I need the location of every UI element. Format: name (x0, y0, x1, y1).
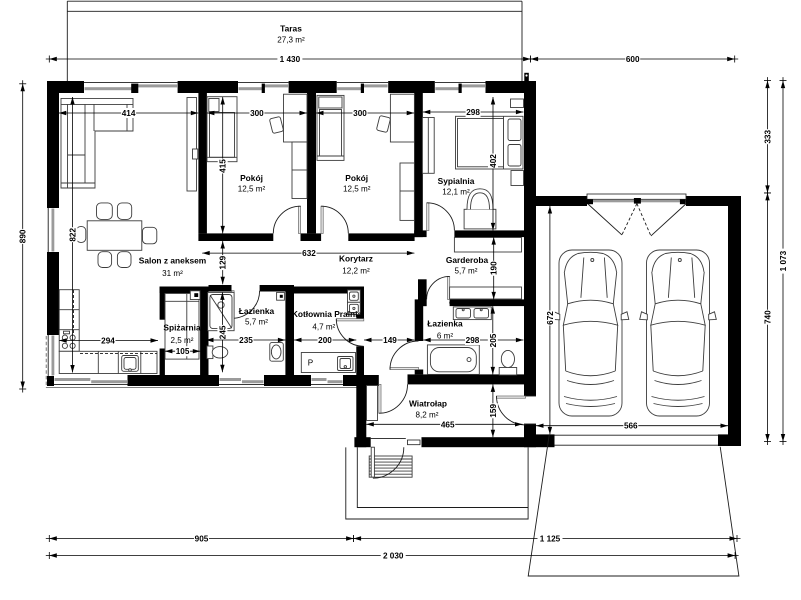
svg-text:Spiżarnia: Spiżarnia (163, 323, 201, 333)
svg-text:12,1 m²: 12,1 m² (442, 188, 470, 197)
svg-text:300: 300 (353, 109, 367, 118)
svg-text:1 430: 1 430 (280, 55, 301, 64)
svg-text:27,3 m²: 27,3 m² (277, 36, 305, 45)
svg-text:190: 190 (490, 261, 499, 275)
svg-text:129: 129 (219, 255, 228, 269)
svg-text:402: 402 (489, 154, 498, 168)
svg-text:465: 465 (441, 420, 455, 429)
svg-text:31 m²: 31 m² (162, 269, 183, 278)
svg-text:12,5 m²: 12,5 m² (343, 185, 371, 194)
svg-text:415: 415 (219, 159, 228, 173)
svg-text:294: 294 (101, 337, 115, 346)
svg-text:632: 632 (302, 249, 316, 258)
svg-text:1 125: 1 125 (540, 535, 561, 544)
svg-text:Pokój: Pokój (240, 173, 263, 183)
svg-text:200: 200 (318, 336, 332, 345)
svg-text:300: 300 (250, 109, 264, 118)
svg-text:Taras: Taras (280, 24, 302, 34)
svg-text:235: 235 (239, 336, 253, 345)
svg-text:Sypialnia: Sypialnia (438, 176, 475, 186)
svg-text:333: 333 (764, 130, 773, 144)
svg-text:5,7 m²: 5,7 m² (455, 267, 478, 276)
svg-text:Wiatrołap: Wiatrołap (409, 399, 447, 409)
svg-text:Kotłownia Pralnia: Kotłownia Pralnia (292, 309, 363, 319)
svg-text:1 073: 1 073 (779, 250, 788, 271)
svg-text:822: 822 (69, 228, 78, 242)
svg-text:5,7 m²: 5,7 m² (245, 318, 268, 327)
svg-text:298: 298 (466, 108, 480, 117)
svg-text:12,5 m²: 12,5 m² (238, 185, 266, 194)
svg-text:414: 414 (122, 109, 136, 118)
svg-text:149: 149 (383, 336, 397, 345)
svg-text:Salon z aneksem: Salon z aneksem (139, 256, 207, 266)
svg-text:Korytarz: Korytarz (339, 254, 373, 264)
svg-text:Garderoba: Garderoba (446, 255, 489, 265)
svg-text:6 m²: 6 m² (437, 332, 453, 341)
svg-text:600: 600 (626, 55, 640, 64)
svg-text:105: 105 (176, 347, 190, 356)
svg-text:12,2 m²: 12,2 m² (342, 267, 370, 276)
svg-text:8,2 m²: 8,2 m² (416, 411, 439, 420)
svg-text:Łazienka: Łazienka (427, 319, 463, 329)
svg-text:2 030: 2 030 (383, 552, 404, 561)
svg-text:566: 566 (624, 422, 638, 431)
svg-text:2,5 m²: 2,5 m² (171, 336, 194, 345)
svg-text:672: 672 (546, 311, 555, 325)
svg-text:159: 159 (489, 404, 498, 418)
svg-text:Łazienka: Łazienka (239, 306, 275, 316)
svg-text:Pokój: Pokój (345, 173, 368, 183)
svg-text:P: P (308, 359, 313, 368)
svg-text:205: 205 (489, 333, 498, 347)
svg-text:298: 298 (466, 336, 480, 345)
svg-text:905: 905 (195, 535, 209, 544)
svg-text:245: 245 (218, 325, 227, 339)
svg-text:740: 740 (764, 310, 773, 324)
svg-text:4,7 m²: 4,7 m² (312, 323, 335, 332)
svg-text:890: 890 (19, 229, 28, 243)
